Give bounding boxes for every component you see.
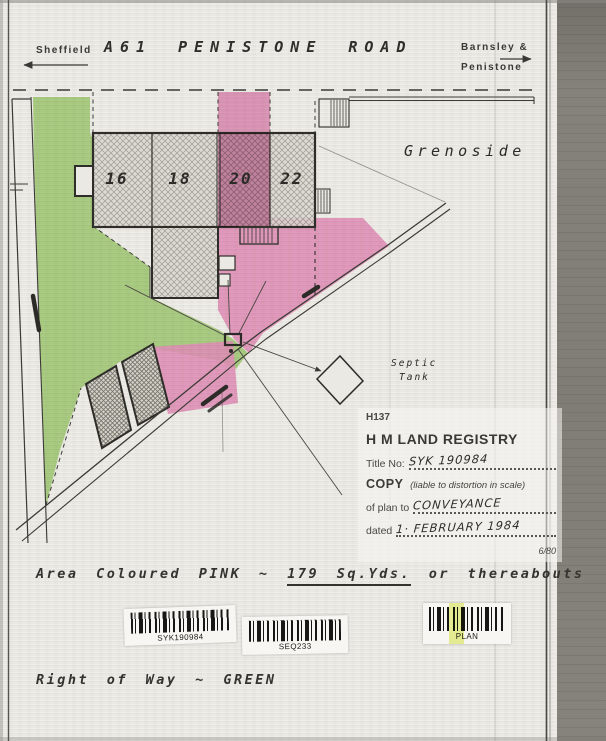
print-code: 6/80	[366, 546, 556, 556]
road-boundary-lines	[12, 90, 541, 104]
house-number-18: 18	[168, 169, 191, 188]
destination-barnsley: Barnsley & Penistone	[461, 42, 528, 73]
route-number: A61	[104, 38, 152, 56]
barcode-label: SEQ233	[242, 641, 348, 653]
manhole-dot	[229, 349, 233, 353]
porch-left	[75, 166, 93, 196]
scanned-plan-page: 16 18 20 22 Grenoside Septic Tank Sheffi…	[0, 0, 606, 741]
barcode-title-number: SYK190984	[123, 605, 236, 646]
barcode-label: PLAN	[423, 632, 511, 642]
pink-area-note-suffix: or thereabouts	[429, 566, 585, 582]
septic-tank-marker	[317, 356, 363, 404]
side-steps-22	[315, 189, 330, 213]
house-number-20: 20	[228, 169, 252, 188]
registry-title: H M LAND REGISTRY	[366, 431, 556, 447]
barcode-sequence: SEQ233	[242, 615, 349, 655]
right-of-way-note: Right of Way ~ GREEN	[36, 672, 277, 688]
of-plan-value: CONVEYANCE	[413, 495, 503, 512]
septic-tank-label-line1: Septic	[391, 358, 437, 369]
house-number-16: 16	[105, 169, 128, 188]
direction-arrows	[24, 59, 531, 65]
rear-extension-18	[152, 227, 218, 298]
dated-label: dated	[366, 525, 392, 537]
copy-note: (liable to distortion in scale)	[410, 480, 525, 491]
road-name: A61 PENISTONE ROAD	[104, 38, 413, 56]
pink-area-note-prefix: Area Coloured PINK ~	[36, 566, 270, 582]
destination-barnsley-line2: Penistone	[461, 62, 528, 73]
place-label: Grenoside	[404, 142, 526, 160]
barcode-bars-icon	[249, 619, 341, 642]
dated-value: 1· FEBRUARY 1984	[396, 518, 522, 536]
land-registry-stamp: H137 H M LAND REGISTRY Title No: SYK 190…	[358, 408, 562, 562]
pink-area-note-value: 179 Sq.Yds.	[287, 566, 411, 586]
septic-tank-label-line2: Tank	[399, 372, 430, 383]
septic-tank-arrow	[243, 342, 321, 371]
road-name-word2: ROAD	[348, 38, 412, 56]
outbuilding-small-a	[219, 256, 235, 270]
barcode-bars-icon	[131, 609, 230, 633]
ne-porch-steps	[319, 99, 349, 127]
form-code: H137	[366, 412, 556, 423]
of-plan-label: of plan to	[366, 502, 409, 514]
destination-sheffield: Sheffield	[36, 45, 92, 56]
copy-word: COPY	[366, 477, 403, 491]
road-name-word1: PENISTONE	[178, 38, 322, 56]
title-no-label: Title No:	[366, 458, 405, 470]
pink-area-note: Area Coloured PINK ~ 179 Sq.Yds. or ther…	[36, 566, 585, 582]
title-no-value: SYK 190984	[408, 452, 488, 469]
house-number-22: 22	[279, 169, 303, 188]
barcode-plan: PLAN	[423, 603, 511, 644]
barcode-bars-icon	[429, 607, 505, 631]
destination-barnsley-line1: Barnsley &	[461, 42, 528, 53]
yellow-highlighter-mark	[449, 603, 464, 644]
